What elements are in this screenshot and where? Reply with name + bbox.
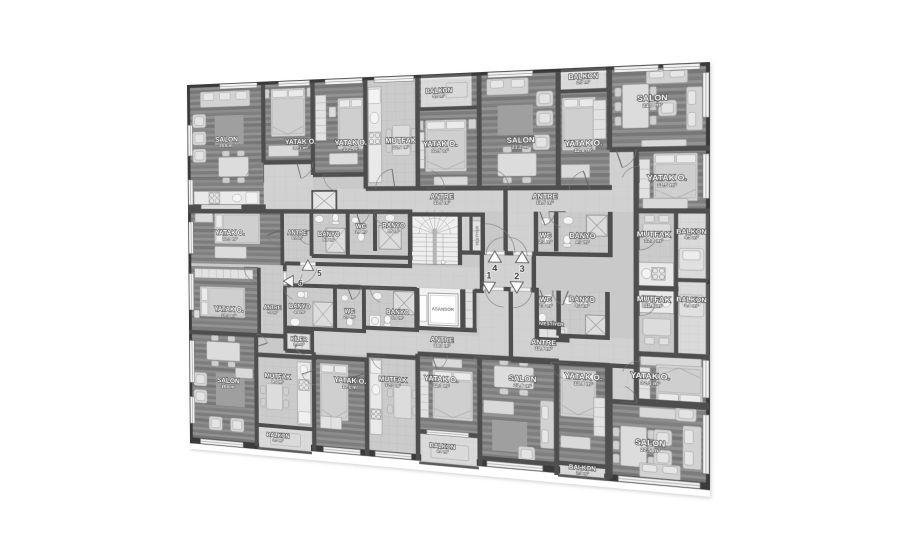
- svg-text:6: 6: [298, 278, 303, 288]
- svg-text:3.0 m²: 3.0 m²: [273, 438, 285, 443]
- svg-text:12.8 m²: 12.8 m²: [644, 237, 664, 244]
- svg-text:4.5 m²: 4.5 m²: [387, 229, 400, 234]
- svg-text:1: 1: [486, 270, 491, 281]
- svg-text:12.3 m²: 12.3 m²: [433, 382, 451, 389]
- svg-text:2.1 m²: 2.1 m²: [539, 239, 554, 244]
- svg-text:4.9 m²: 4.9 m²: [436, 449, 449, 455]
- svg-text:1.9 m²: 1.9 m²: [293, 342, 305, 347]
- svg-text:12.1 m²: 12.1 m²: [342, 383, 359, 390]
- svg-text:16.3 m²: 16.3 m²: [434, 342, 451, 349]
- svg-text:11.5 m²: 11.5 m²: [657, 182, 677, 188]
- svg-text:21.6 m²: 21.6 m²: [514, 382, 533, 389]
- svg-text:21.2 m²: 21.2 m²: [512, 144, 531, 150]
- svg-text:4.5 m²: 4.5 m²: [684, 235, 699, 240]
- svg-text:5.0 m²: 5.0 m²: [391, 316, 404, 321]
- svg-text:ASANSÖR: ASANSÖR: [432, 306, 454, 313]
- svg-text:19.0 m²: 19.0 m²: [221, 383, 236, 389]
- svg-text:2.0 m²: 2.0 m²: [344, 315, 357, 320]
- svg-text:5: 5: [317, 268, 322, 278]
- svg-text:11.6 m²: 11.6 m²: [645, 302, 664, 309]
- svg-text:21.0 m²: 21.0 m²: [642, 101, 662, 108]
- svg-text:5.8 m²: 5.8 m²: [267, 310, 278, 315]
- svg-text:VESTİYER: VESTİYER: [540, 321, 564, 327]
- svg-text:12.9 m²: 12.9 m²: [392, 144, 409, 150]
- svg-text:13.5 m²: 13.5 m²: [434, 200, 451, 206]
- svg-text:12.8 m²: 12.8 m²: [574, 147, 594, 154]
- svg-text:9.0 m²: 9.0 m²: [272, 379, 285, 385]
- svg-text:6.2 m²: 6.2 m²: [292, 236, 304, 241]
- svg-text:2: 2: [514, 271, 519, 282]
- svg-text:11.6 m²: 11.6 m²: [535, 345, 553, 352]
- svg-text:12.3 m²: 12.3 m²: [385, 382, 401, 389]
- svg-text:2.8 m²: 2.8 m²: [539, 303, 554, 308]
- svg-text:1.8 m²: 1.8 m²: [355, 230, 368, 235]
- svg-text:12.3 m²: 12.3 m²: [223, 236, 238, 242]
- svg-text:13.8 m²: 13.8 m²: [574, 380, 594, 387]
- svg-text:12.3 m²: 12.3 m²: [640, 379, 660, 386]
- svg-text:VESTİYER: VESTİYER: [475, 225, 480, 245]
- svg-text:4.3 m²: 4.3 m²: [575, 303, 590, 308]
- svg-text:20.5 m²: 20.5 m²: [219, 142, 234, 148]
- svg-text:4.4 m²: 4.4 m²: [294, 310, 306, 315]
- svg-text:4.7 m²: 4.7 m²: [575, 240, 590, 245]
- svg-text:3.8 m²: 3.8 m²: [684, 303, 699, 309]
- svg-text:11.5 m²: 11.5 m²: [536, 199, 554, 205]
- svg-text:5.0 m²: 5.0 m²: [433, 94, 446, 99]
- svg-text:12.5 m²: 12.5 m²: [432, 147, 450, 153]
- svg-text:2.7 m²: 2.7 m²: [577, 80, 591, 86]
- svg-text:10.1 m²: 10.1 m²: [293, 145, 309, 151]
- svg-text:5.6 m²: 5.6 m²: [323, 238, 336, 243]
- svg-text:10.3 m²: 10.3 m²: [221, 312, 236, 318]
- svg-text:13.2 m²: 13.2 m²: [343, 146, 360, 152]
- svg-text:3: 3: [520, 263, 525, 274]
